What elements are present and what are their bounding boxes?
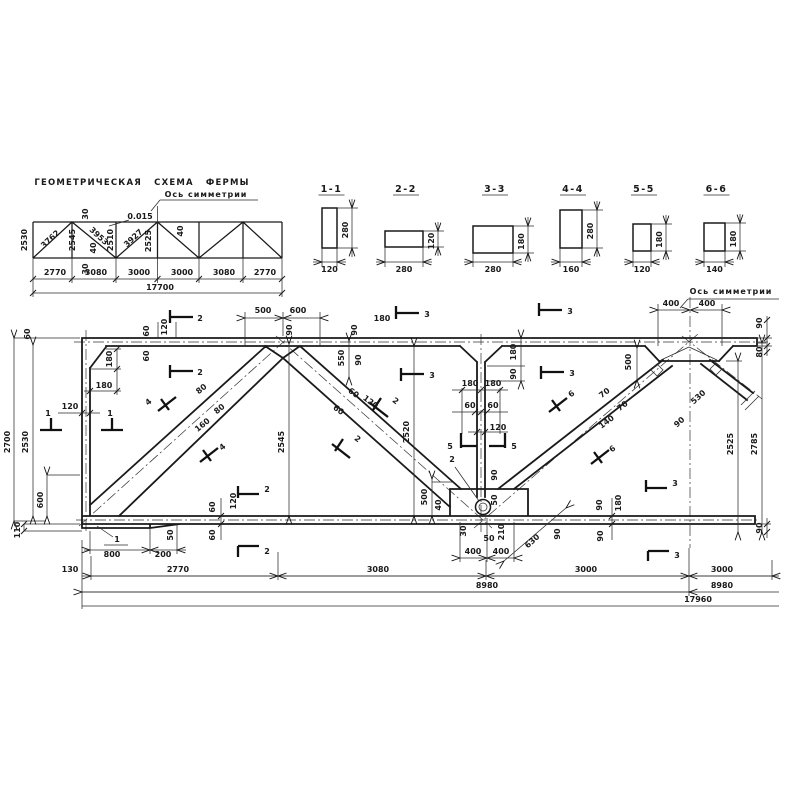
dim-label: 180 [485, 379, 502, 388]
main-elevation: 6027002530600110120180180601206050060090… [3, 287, 779, 609]
section-view-6-6: 6-6140180 [695, 184, 746, 274]
dim-label: 40 [434, 499, 443, 511]
section-height-label: 120 [427, 232, 436, 249]
dim-label: 70 [597, 386, 612, 400]
dim-label: 50 [483, 534, 495, 543]
dim-label: 90 [509, 368, 518, 380]
blueprint-page: ГЕОМЕТРИЧЕСКАЯ СХЕМА ФЕРМЫОсь симметрии0… [0, 0, 800, 800]
section-title-1-1: 1-1 [321, 184, 343, 195]
dim-label: 130 [62, 565, 79, 574]
cut-label-2: 2 [264, 485, 270, 494]
cut-label-3: 3 [567, 307, 573, 316]
dim-label: 3080 [85, 268, 108, 277]
dim-label: 3000 [128, 268, 151, 277]
dim-label: 8980 [476, 581, 499, 590]
cross-sections: 1-11202802-22801203-32801804-41602805-51… [313, 184, 746, 274]
section-view-1-1: 1-1120280 [313, 184, 358, 274]
dim-label: 180 [462, 379, 479, 388]
section-outline [560, 210, 582, 248]
section-title-3-3: 3-3 [484, 184, 506, 195]
dim-label: 180 [509, 343, 518, 360]
schematic-title: ГЕОМЕТРИЧЕСКАЯ СХЕМА ФЕРМЫ [34, 178, 249, 188]
dim-label: 630 [523, 532, 542, 550]
dim-label: 180 [105, 350, 114, 367]
cut-label-3: 3 [569, 369, 575, 378]
dim-label: 40 [89, 242, 98, 254]
section-outline [633, 224, 651, 251]
cut-label-2: 2 [197, 314, 203, 323]
dim-label: 120 [62, 402, 79, 411]
dim-label: 3927 [122, 227, 144, 249]
dim-label: 2510 [106, 228, 115, 251]
section-outline [385, 231, 423, 247]
section-height-label: 180 [655, 231, 664, 248]
dim-label: 60 [23, 328, 32, 340]
dim-label: 140 [597, 413, 616, 430]
cut-label-3: 3 [672, 479, 678, 488]
section-width-label: 120 [321, 265, 338, 274]
dim-label: 60 [487, 401, 499, 410]
dim-label: 2530 [20, 228, 29, 251]
dim-label: 120 [160, 318, 169, 335]
dim-label: 2545 [68, 228, 77, 251]
dim-label: 80 [755, 346, 764, 358]
dim-label: 180 [614, 494, 623, 511]
dim-label: 400 [465, 547, 482, 556]
section-view-3-3: 3-3280180 [464, 184, 534, 274]
dim-label: 90 [490, 469, 499, 481]
axis-of-symmetry-label: Ось симметрии [165, 190, 248, 199]
section-height-label: 280 [586, 222, 595, 239]
detail-mark-2: 2 [449, 455, 455, 464]
dim-label: 530 [689, 388, 708, 406]
dim-label: 200 [155, 550, 172, 559]
member-centerlines [74, 297, 768, 548]
dim-label: 2530 [21, 430, 30, 453]
dim-label: 60 [142, 325, 151, 337]
section-width-label: 140 [706, 265, 723, 274]
section-ext-lines [376, 247, 432, 267]
dim-label: 30 [81, 208, 90, 220]
section-width-label: 280 [485, 265, 502, 274]
dim-label: 3762 [39, 228, 61, 250]
cut-label-5: 5 [511, 442, 517, 451]
dim-label: 90 [755, 317, 764, 329]
dim-label: 2520 [402, 420, 411, 443]
dim-label: 120 [229, 492, 238, 509]
dim-label: 3000 [575, 565, 598, 574]
section-width-label: 280 [396, 265, 413, 274]
dim-label: 2545 [277, 430, 286, 453]
cut-label-3: 3 [424, 310, 430, 319]
dim-label: 90 [354, 354, 363, 366]
section-title-2-2: 2-2 [395, 184, 417, 195]
truss-drawing: ГЕОМЕТРИЧЕСКАЯ СХЕМА ФЕРМЫОсь симметрии0… [0, 0, 800, 800]
section-outline [704, 223, 725, 251]
section-height-label: 280 [341, 221, 350, 238]
section-view-5-5: 5-5120180 [624, 184, 672, 274]
dim-label: 400 [699, 299, 716, 308]
dim-label: 2525 [144, 229, 153, 252]
cut-label-3: 3 [674, 551, 680, 560]
dim-label: 90 [596, 530, 605, 542]
dim-label: 600 [36, 491, 45, 508]
dim-label: 400 [663, 299, 680, 308]
cut-label-3: 3 [429, 371, 435, 380]
dim-label: 50 [166, 529, 175, 541]
cut-label-1: 1 [107, 409, 113, 418]
section-width-label: 160 [563, 265, 580, 274]
dim-label: 90 [755, 522, 764, 534]
node-pin-circle-outer [476, 500, 491, 515]
geometric-scheme: ГЕОМЕТРИЧЕСКАЯ СХЕМА ФЕРМЫОсь симметрии0… [20, 178, 285, 297]
section-outline [473, 226, 513, 253]
dim-label: 160 [193, 416, 212, 434]
section-height-label: 180 [729, 230, 738, 247]
elevation-labels: 6027002530600110120180180601206050060090… [3, 287, 772, 604]
dim-label: 60 [331, 403, 346, 417]
cut-label-6: 6 [608, 443, 618, 454]
dim-label: 2770 [167, 565, 190, 574]
dim-label: 110 [13, 521, 22, 538]
dim-label: 180 [374, 314, 391, 323]
dim-label: 17700 [146, 283, 174, 292]
cut-label-5: 5 [447, 442, 453, 451]
scheme-labels: ГЕОМЕТРИЧЕСКАЯ СХЕМА ФЕРМЫОсь симметрии0… [20, 178, 277, 292]
cut-label-2: 2 [264, 547, 270, 556]
node-pin-circle-inner [479, 503, 487, 511]
section-title-4-4: 4-4 [562, 184, 584, 195]
dim-label: 90 [285, 324, 294, 336]
dim-label: 500 [420, 488, 429, 505]
dim-label: 500 [255, 306, 272, 315]
section-title-5-5: 5-5 [633, 184, 655, 195]
cut-label-4: 4 [217, 442, 227, 453]
dim-label: 60 [464, 401, 476, 410]
dim-label: 120 [490, 423, 507, 432]
dim-label: 2700 [3, 430, 12, 453]
dim-label: 17960 [684, 595, 712, 604]
cut-label-6: 6 [567, 388, 577, 399]
dim-label: 60 [208, 529, 217, 541]
dim-label: 80 [194, 382, 209, 396]
dim-label: 800 [104, 550, 121, 559]
dim-label: 180 [96, 381, 113, 390]
dim-label: 600 [290, 306, 307, 315]
cut-label-1: 1 [45, 409, 51, 418]
dim-label: 0.015 [127, 212, 153, 221]
axis-of-symmetry-label: Ось симметрии [690, 287, 773, 296]
dim-label: 210 [497, 523, 506, 540]
section-view-2-2: 2-2280120 [376, 184, 444, 274]
dim-label: 90 [672, 415, 687, 429]
dim-label: 90 [350, 324, 359, 336]
section-height-label: 180 [517, 233, 526, 250]
section-title-6-6: 6-6 [706, 184, 728, 195]
dim-label: 3000 [711, 565, 734, 574]
splice-squares [651, 347, 759, 410]
dim-label: 2770 [44, 268, 67, 277]
cut-label-2: 2 [353, 434, 363, 445]
section-view-4-4: 4-4160280 [551, 184, 603, 274]
dim-label: 3080 [213, 268, 236, 277]
dimension-lines [14, 310, 772, 592]
dim-label: 90 [595, 499, 604, 511]
detail-mark-1: 1 [114, 535, 120, 544]
dim-label: 2525 [726, 432, 735, 455]
dim-label: 550 [337, 349, 346, 366]
dim-label: 8980 [711, 581, 734, 590]
dim-label: 40 [176, 225, 185, 237]
cut-label-4: 4 [143, 397, 153, 408]
dim-label: 3080 [367, 565, 390, 574]
dim-label: 2785 [750, 432, 759, 455]
dim-label: 30 [459, 525, 468, 537]
cut-label-2: 2 [197, 368, 203, 377]
dim-label: 2770 [254, 268, 277, 277]
dim-label: 60 [208, 501, 217, 513]
cut-label-2: 2 [391, 396, 401, 407]
dim-label: 60 [142, 350, 151, 362]
section-outline [322, 208, 337, 248]
dim-label: 3000 [171, 268, 194, 277]
section-width-label: 120 [634, 265, 651, 274]
dim-label: 500 [624, 353, 633, 370]
dim-label: 50 [490, 494, 499, 506]
dim-label: 400 [493, 547, 510, 556]
dim-label: 90 [553, 528, 562, 540]
